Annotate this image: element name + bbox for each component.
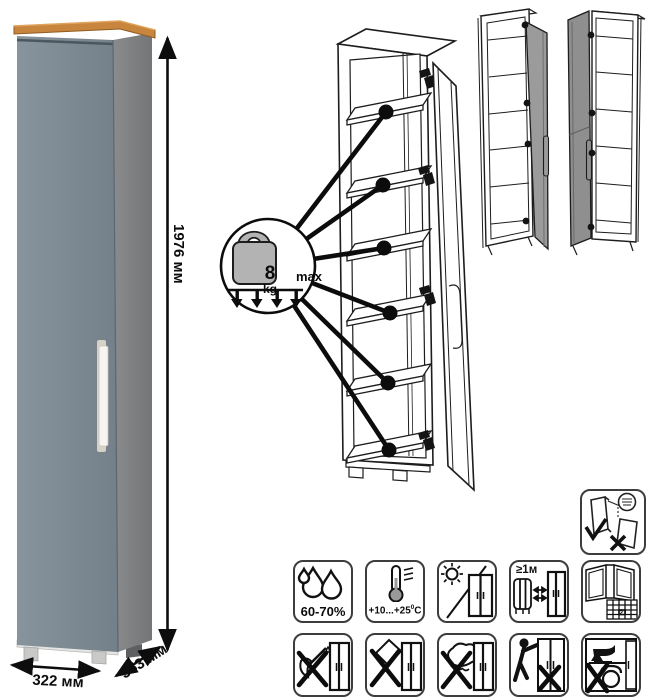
ventilation-tile: 21 (581, 560, 641, 623)
open-window-icon (586, 565, 634, 601)
door-variant-right-drawing (478, 9, 549, 255)
wood-top-board (14, 21, 155, 38)
radiator-icon (514, 579, 531, 614)
product-photo-cabinet (0, 0, 200, 700)
temperature-tile: +10...+250C (365, 560, 425, 623)
no-sharp-objects-tile (293, 633, 353, 697)
wardrobe-icon (474, 643, 493, 690)
cabinet-side-panel (113, 33, 152, 652)
cabinet-line-drawing (338, 29, 474, 490)
shelf-load-diagram (200, 20, 490, 500)
open-door-drawing (433, 63, 474, 490)
no-overload-icon (583, 635, 639, 695)
open-window-calendar-icon (583, 562, 639, 621)
humidity-tile: 60-70% (293, 560, 353, 623)
no-heavy-load-tile (581, 633, 641, 697)
calendar-day-label: 21 (619, 608, 627, 617)
sun-slash-cabinet-icon (439, 562, 495, 621)
no-wet-cloth-tile (437, 633, 497, 697)
wardrobe-icon (469, 575, 492, 616)
sun-icon (441, 563, 463, 585)
gray-door-panel (568, 11, 591, 246)
product-sheet: 1976 мм 322 мм 353 мм (0, 0, 648, 700)
no-drag-icon (511, 635, 567, 695)
no-abrasives-tile (365, 633, 425, 697)
wall-anchor-warning-tile (580, 489, 646, 555)
no-axe-icon (295, 635, 351, 695)
humidity-label: 60-70% (295, 605, 351, 618)
door-variant-left-drawing (568, 11, 645, 255)
max-weight-qualifier: max (292, 269, 326, 284)
wardrobe-icon (330, 643, 349, 690)
heat-distance-label: ≥1м (516, 564, 537, 576)
water-drops-icon (295, 565, 351, 603)
no-direct-sunlight-tile (437, 560, 497, 623)
temperature-label: +10...+250C (367, 605, 423, 616)
heat-distance-tile: ≥1м (509, 560, 569, 623)
no-powder-icon (367, 635, 423, 695)
max-weight-unit: kg (260, 282, 280, 296)
thermometer-icon (367, 564, 423, 602)
door-handle (97, 340, 108, 452)
wall-anchor-warning-icon (582, 491, 644, 553)
door-handle-mark (587, 140, 592, 180)
door-variant-drawings (470, 5, 648, 263)
spacing-arrows-icon (534, 588, 546, 601)
wardrobe-icon (548, 572, 565, 616)
height-dimension-label: 1976 мм (170, 224, 187, 284)
no-dragging-tile (509, 633, 569, 697)
wardrobe-icon (402, 643, 421, 690)
door-handle-mark (544, 136, 549, 176)
person-icon (515, 638, 537, 680)
width-dimension-arrow (12, 665, 99, 671)
no-sponge-icon (439, 635, 495, 695)
